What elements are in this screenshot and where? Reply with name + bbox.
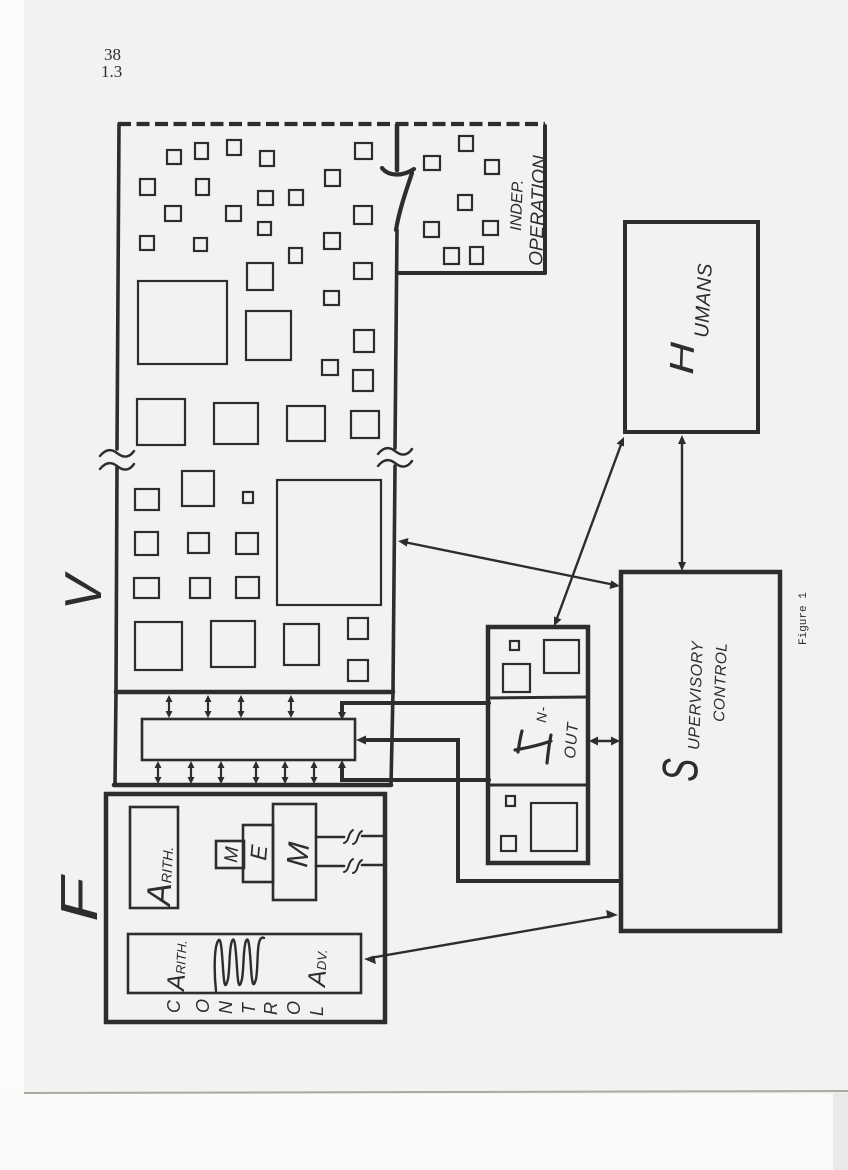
svg-text:M: M xyxy=(281,841,316,869)
svg-text:Figure 1: Figure 1 xyxy=(798,592,810,645)
svg-text:F: F xyxy=(51,874,109,922)
svg-text:CONTROL: CONTROL xyxy=(711,642,731,722)
svg-text:H: H xyxy=(663,341,702,375)
svg-text:1.3: 1.3 xyxy=(101,62,122,81)
svg-text:C: C xyxy=(164,999,184,1013)
svg-text:E: E xyxy=(245,843,272,861)
svg-text:M: M xyxy=(221,846,243,864)
svg-text:UMANS: UMANS xyxy=(691,262,717,338)
svg-text:N-: N- xyxy=(533,705,550,723)
svg-text:V: V xyxy=(55,571,113,610)
svg-text:N: N xyxy=(216,1000,236,1014)
svg-text:OUT: OUT xyxy=(562,721,582,759)
svg-text:O: O xyxy=(193,999,213,1013)
svg-text:R: R xyxy=(261,1002,281,1015)
svg-text:OPERATION: OPERATION xyxy=(526,155,551,266)
svg-text:INDEP.: INDEP. xyxy=(508,179,527,231)
svg-text:L: L xyxy=(307,1006,327,1016)
svg-text:O: O xyxy=(284,1001,304,1015)
svg-text:S: S xyxy=(653,757,710,782)
